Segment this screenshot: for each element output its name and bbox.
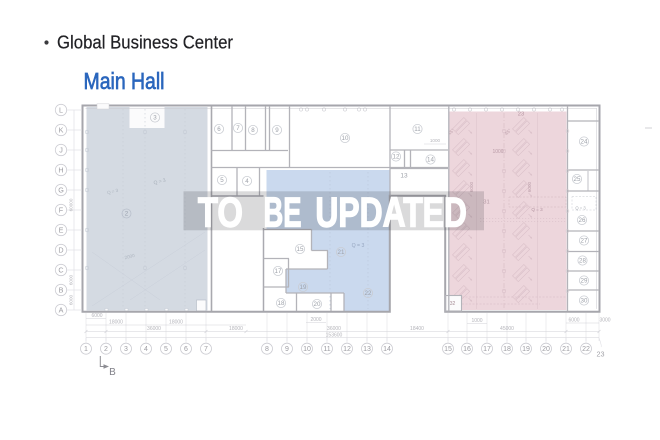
- svg-text:BE: BE: [264, 189, 302, 236]
- svg-text:3: 3: [153, 115, 157, 122]
- svg-text:7: 7: [204, 346, 208, 353]
- svg-text:Q = 3: Q = 3: [352, 243, 365, 249]
- svg-text:10: 10: [342, 135, 349, 142]
- svg-text:A: A: [59, 306, 64, 315]
- svg-text:J: J: [59, 146, 63, 155]
- svg-text:2: 2: [104, 346, 108, 353]
- svg-text:Q = 3: Q = 3: [531, 207, 543, 212]
- svg-text:24: 24: [581, 139, 588, 146]
- svg-text:6000: 6000: [91, 313, 102, 319]
- svg-text:21: 21: [562, 346, 570, 353]
- svg-text:26: 26: [579, 217, 586, 224]
- svg-text:1000: 1000: [492, 149, 503, 155]
- svg-text:Q = 3: Q = 3: [575, 206, 586, 211]
- svg-text:7: 7: [236, 125, 240, 132]
- svg-text:18000: 18000: [109, 320, 123, 326]
- svg-text:31: 31: [483, 200, 489, 206]
- svg-text:17: 17: [483, 346, 491, 353]
- svg-text:2: 2: [125, 211, 129, 218]
- svg-text:10: 10: [303, 346, 311, 353]
- svg-text:9: 9: [285, 346, 289, 353]
- svg-text:6000: 6000: [469, 181, 474, 192]
- svg-text:16: 16: [463, 346, 471, 353]
- svg-text:36000: 36000: [327, 326, 341, 332]
- svg-text:18400: 18400: [410, 326, 424, 332]
- svg-text:18000: 18000: [169, 320, 183, 326]
- svg-text:11: 11: [414, 126, 421, 133]
- svg-text:153600: 153600: [326, 332, 343, 338]
- svg-text:18000: 18000: [229, 326, 243, 332]
- svg-text:6000: 6000: [69, 274, 74, 285]
- svg-text:6000: 6000: [69, 294, 74, 305]
- svg-text:1: 1: [84, 346, 88, 353]
- svg-text:4: 4: [245, 178, 249, 185]
- svg-text:36000: 36000: [147, 326, 161, 332]
- svg-text:5: 5: [220, 177, 224, 184]
- svg-text:22: 22: [365, 290, 372, 297]
- svg-text:30: 30: [581, 298, 588, 305]
- svg-text:6000: 6000: [527, 181, 532, 192]
- svg-text:6: 6: [184, 346, 188, 353]
- svg-text:6000: 6000: [568, 318, 579, 324]
- svg-text:14: 14: [383, 346, 391, 353]
- svg-text:3000: 3000: [599, 318, 610, 324]
- svg-text:9: 9: [275, 127, 279, 134]
- svg-text:23: 23: [597, 350, 605, 359]
- svg-text:17: 17: [275, 268, 282, 275]
- svg-text:5: 5: [164, 346, 168, 353]
- svg-text:Main Hall: Main Hall: [84, 68, 165, 94]
- svg-text:29: 29: [581, 278, 588, 285]
- svg-text:22: 22: [582, 346, 590, 353]
- svg-text:8: 8: [265, 346, 269, 353]
- svg-text:3: 3: [124, 346, 128, 353]
- svg-text:19: 19: [522, 346, 530, 353]
- svg-text:18: 18: [503, 346, 511, 353]
- svg-text:UPDATED: UPDATED: [315, 189, 467, 236]
- svg-text:E: E: [59, 226, 64, 235]
- svg-text:12: 12: [343, 346, 351, 353]
- svg-text:13: 13: [363, 346, 371, 353]
- svg-text:G: G: [58, 186, 64, 195]
- svg-text:15: 15: [444, 346, 452, 353]
- svg-text:32: 32: [450, 301, 456, 307]
- svg-text:18: 18: [278, 300, 285, 307]
- svg-text:12: 12: [393, 154, 400, 161]
- svg-text:C: C: [58, 266, 63, 275]
- svg-text:TO: TO: [198, 189, 243, 236]
- svg-text:2000: 2000: [310, 317, 321, 323]
- svg-text:1000: 1000: [430, 138, 441, 143]
- svg-text:K: K: [59, 126, 64, 135]
- svg-text:F: F: [59, 206, 64, 215]
- svg-text:D: D: [58, 246, 63, 255]
- svg-text:14: 14: [427, 157, 434, 164]
- svg-text:4: 4: [144, 346, 148, 353]
- svg-text:27: 27: [581, 238, 588, 245]
- svg-text:11: 11: [323, 346, 330, 353]
- svg-text:H: H: [58, 166, 63, 175]
- svg-text:20: 20: [542, 346, 550, 353]
- svg-text:8: 8: [251, 127, 255, 134]
- svg-text:21: 21: [338, 249, 345, 256]
- svg-text:13: 13: [400, 173, 408, 180]
- svg-text:20: 20: [314, 301, 321, 308]
- svg-text:1000: 1000: [471, 318, 482, 324]
- svg-text:60000: 60000: [69, 198, 74, 211]
- svg-text:28: 28: [579, 258, 586, 265]
- svg-text:6: 6: [217, 126, 221, 133]
- svg-text:B: B: [109, 367, 116, 378]
- svg-text:23: 23: [518, 112, 524, 118]
- svg-text:19: 19: [300, 284, 307, 291]
- svg-text:45000: 45000: [500, 326, 514, 332]
- svg-text:L: L: [59, 106, 63, 115]
- svg-text:25: 25: [574, 176, 581, 183]
- svg-text:Global Business Center: Global Business Center: [57, 33, 233, 53]
- svg-text:B: B: [59, 286, 64, 295]
- svg-text:15: 15: [297, 246, 304, 253]
